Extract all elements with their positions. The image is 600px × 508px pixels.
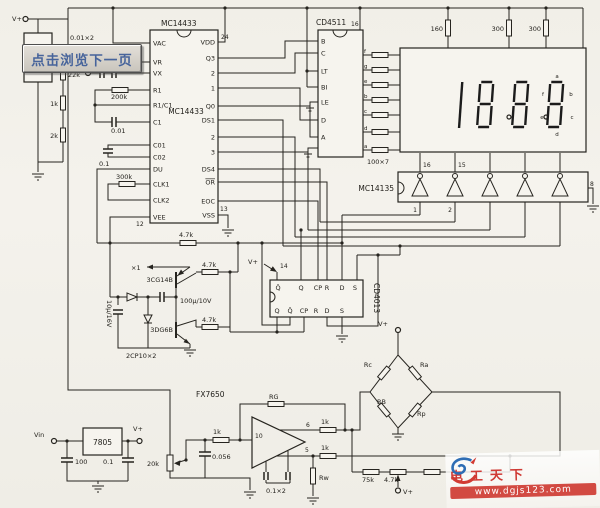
watermark-logo-icon xyxy=(445,453,480,488)
svg-text:0.01: 0.01 xyxy=(111,127,125,135)
svg-text:RG: RG xyxy=(269,393,279,401)
svg-text:OR: OR xyxy=(205,179,215,187)
svg-text:Q̄: Q̄ xyxy=(275,283,280,292)
svg-text:DS4: DS4 xyxy=(202,166,215,174)
svg-text:100μ/10V: 100μ/10V xyxy=(180,297,212,305)
vin-terminal xyxy=(52,439,57,444)
svg-text:8: 8 xyxy=(590,181,594,188)
mc14433-title: MC14433 xyxy=(161,19,197,28)
svg-text:12: 12 xyxy=(136,221,144,228)
svg-text:Rp: Rp xyxy=(417,410,426,418)
svg-text:V+: V+ xyxy=(248,258,258,266)
svg-text:1k: 1k xyxy=(321,418,329,426)
svg-text:a: a xyxy=(555,74,558,80)
svg-text:300k: 300k xyxy=(116,173,132,181)
diode-1 xyxy=(127,293,137,301)
svg-text:VDD: VDD xyxy=(201,39,215,47)
svg-text:Q̄: Q̄ xyxy=(287,306,292,315)
svg-text:V+: V+ xyxy=(133,425,143,433)
svg-text:a: a xyxy=(364,144,367,150)
svg-text:R: R xyxy=(325,284,330,292)
svg-text:C02: C02 xyxy=(153,154,166,162)
svg-text:2: 2 xyxy=(211,70,215,78)
svg-text:13: 13 xyxy=(220,206,228,213)
svg-text:Q: Q xyxy=(298,284,303,292)
cd4013-title: CD4013 xyxy=(372,283,381,313)
svg-text:Q0: Q0 xyxy=(206,103,215,111)
svg-text:B: B xyxy=(321,38,325,46)
svg-text:A: A xyxy=(321,134,326,142)
svg-text:Rc: Rc xyxy=(364,361,373,369)
svg-text:R1: R1 xyxy=(153,87,162,95)
svg-text:300: 300 xyxy=(529,25,541,33)
diode-2 xyxy=(144,315,152,323)
svg-text:24: 24 xyxy=(221,34,229,41)
x1-arrow xyxy=(147,265,153,270)
svg-text:d: d xyxy=(364,126,368,132)
decimal-point-1 xyxy=(507,115,511,119)
svg-text:V+: V+ xyxy=(378,320,388,328)
svg-text:0.1: 0.1 xyxy=(103,458,113,466)
driver-ic xyxy=(398,172,588,202)
svg-text:D: D xyxy=(321,117,326,125)
svg-text:g: g xyxy=(364,64,368,70)
svg-text:VSS: VSS xyxy=(202,212,215,220)
svg-text:Rw: Rw xyxy=(319,474,330,482)
svg-text:Q: Q xyxy=(274,307,279,315)
circuit-schematic: V+ 0.01×2 22k 1k 2k 200k 0.01 0.1 300k 4… xyxy=(0,0,600,508)
svg-text:VR: VR xyxy=(153,59,162,67)
svg-text:1k: 1k xyxy=(321,444,329,452)
svg-text:S: S xyxy=(340,307,344,315)
svg-text:VX: VX xyxy=(153,70,162,78)
cd4511-title: CD4511 xyxy=(316,18,346,27)
svg-text:4.7k: 4.7k xyxy=(179,231,193,239)
svg-text:D: D xyxy=(324,307,329,315)
svg-text:0.056: 0.056 xyxy=(212,453,231,461)
svg-text:C1: C1 xyxy=(153,119,162,127)
svg-text:75k: 75k xyxy=(362,476,374,484)
svg-text:C: C xyxy=(321,50,326,58)
svg-text:MC14433: MC14433 xyxy=(168,107,204,116)
svg-text:1: 1 xyxy=(413,207,417,214)
svg-text:CLK2: CLK2 xyxy=(153,197,170,205)
svg-text:RB: RB xyxy=(377,398,386,406)
input-cap-label: 0.01×2 xyxy=(70,34,94,42)
svg-text:b: b xyxy=(569,92,573,98)
svg-text:c: c xyxy=(570,115,573,121)
svg-text:EOC: EOC xyxy=(201,198,215,206)
svg-text:4.7k: 4.7k xyxy=(202,261,216,269)
svg-text:S: S xyxy=(353,284,357,292)
svg-text:300: 300 xyxy=(492,25,504,33)
svg-text:0.1×2: 0.1×2 xyxy=(266,487,286,495)
svg-text:VEE: VEE xyxy=(153,214,166,222)
svg-text:DS1: DS1 xyxy=(202,117,215,125)
svg-text:CP: CP xyxy=(300,307,309,315)
svg-text:Q3: Q3 xyxy=(206,55,215,63)
svg-text:1k: 1k xyxy=(50,100,58,108)
svg-text:15: 15 xyxy=(458,162,466,169)
svg-text:4.7k: 4.7k xyxy=(202,316,216,324)
svg-text:d: d xyxy=(555,132,559,138)
svg-text:160: 160 xyxy=(431,25,443,33)
svg-text:2: 2 xyxy=(448,207,452,214)
svg-text:2k: 2k xyxy=(50,132,58,140)
svg-text:4.7k: 4.7k xyxy=(384,476,398,484)
opamp-triangle xyxy=(252,417,305,468)
svg-text:c: c xyxy=(364,109,367,115)
opamp-title: FX7650 xyxy=(196,390,225,399)
svg-text:C01: C01 xyxy=(153,142,166,150)
svg-text:2: 2 xyxy=(211,134,215,142)
svg-text:V+: V+ xyxy=(403,488,413,496)
schematic-page: V+ 0.01×2 22k 1k 2k 200k 0.01 0.1 300k 4… xyxy=(0,0,600,508)
svg-text:5: 5 xyxy=(305,447,309,454)
svg-text:10μ/16V: 10μ/16V xyxy=(105,300,113,328)
vplus-top-label: V+ xyxy=(12,15,22,23)
pot20k-wiper-arrow xyxy=(174,460,181,466)
svg-text:16: 16 xyxy=(351,21,359,28)
svg-text:DU: DU xyxy=(153,166,163,174)
vplus-arrow xyxy=(270,266,277,272)
svg-text:100: 100 xyxy=(75,458,87,466)
svg-text:3CG14B: 3CG14B xyxy=(147,276,173,284)
svg-text:f: f xyxy=(364,49,367,55)
svg-text:R1/C1: R1/C1 xyxy=(153,102,173,110)
watermark: 电工天下 www.dgjs123.com xyxy=(445,450,600,508)
svg-text:Ra: Ra xyxy=(420,361,428,369)
svg-text:Vin: Vin xyxy=(34,431,44,439)
svg-text:200k: 200k xyxy=(111,93,127,101)
svg-text:14: 14 xyxy=(280,263,288,270)
svg-text:CP: CP xyxy=(314,284,323,292)
svg-text:6: 6 xyxy=(306,422,310,429)
svg-text:LE: LE xyxy=(321,99,329,107)
svg-text:2CP10×2: 2CP10×2 xyxy=(126,352,156,360)
svg-text:20k: 20k xyxy=(147,460,159,468)
svg-text:0.1: 0.1 xyxy=(99,160,109,168)
svg-text:×1: ×1 xyxy=(131,264,141,272)
svg-text:3: 3 xyxy=(211,149,215,157)
pot-vplus-terminal xyxy=(396,488,401,493)
svg-text:LT: LT xyxy=(321,68,328,76)
svg-text:CLK1: CLK1 xyxy=(153,181,170,189)
svg-text:e: e xyxy=(364,79,368,85)
svg-text:BI: BI xyxy=(321,84,327,92)
svg-text:1k: 1k xyxy=(213,428,221,436)
svg-text:b: b xyxy=(364,94,368,100)
svg-text:D: D xyxy=(339,284,344,292)
svg-text:1: 1 xyxy=(211,85,215,93)
svg-text:3DG6B: 3DG6B xyxy=(150,326,173,334)
next-page-button[interactable]: 点击浏览下一页 xyxy=(22,44,142,73)
svg-text:16: 16 xyxy=(423,162,431,169)
svg-text:R: R xyxy=(314,307,319,315)
pnp-transistor xyxy=(177,267,196,284)
driver-title: MC14135 xyxy=(358,184,394,193)
svg-text:VAC: VAC xyxy=(153,40,166,48)
regulator-title: 7805 xyxy=(93,438,112,447)
svg-text:100×7: 100×7 xyxy=(367,158,389,166)
svg-text:10: 10 xyxy=(255,433,263,440)
vout-terminal xyxy=(137,439,142,444)
bridge-vplus-terminal xyxy=(396,328,401,333)
